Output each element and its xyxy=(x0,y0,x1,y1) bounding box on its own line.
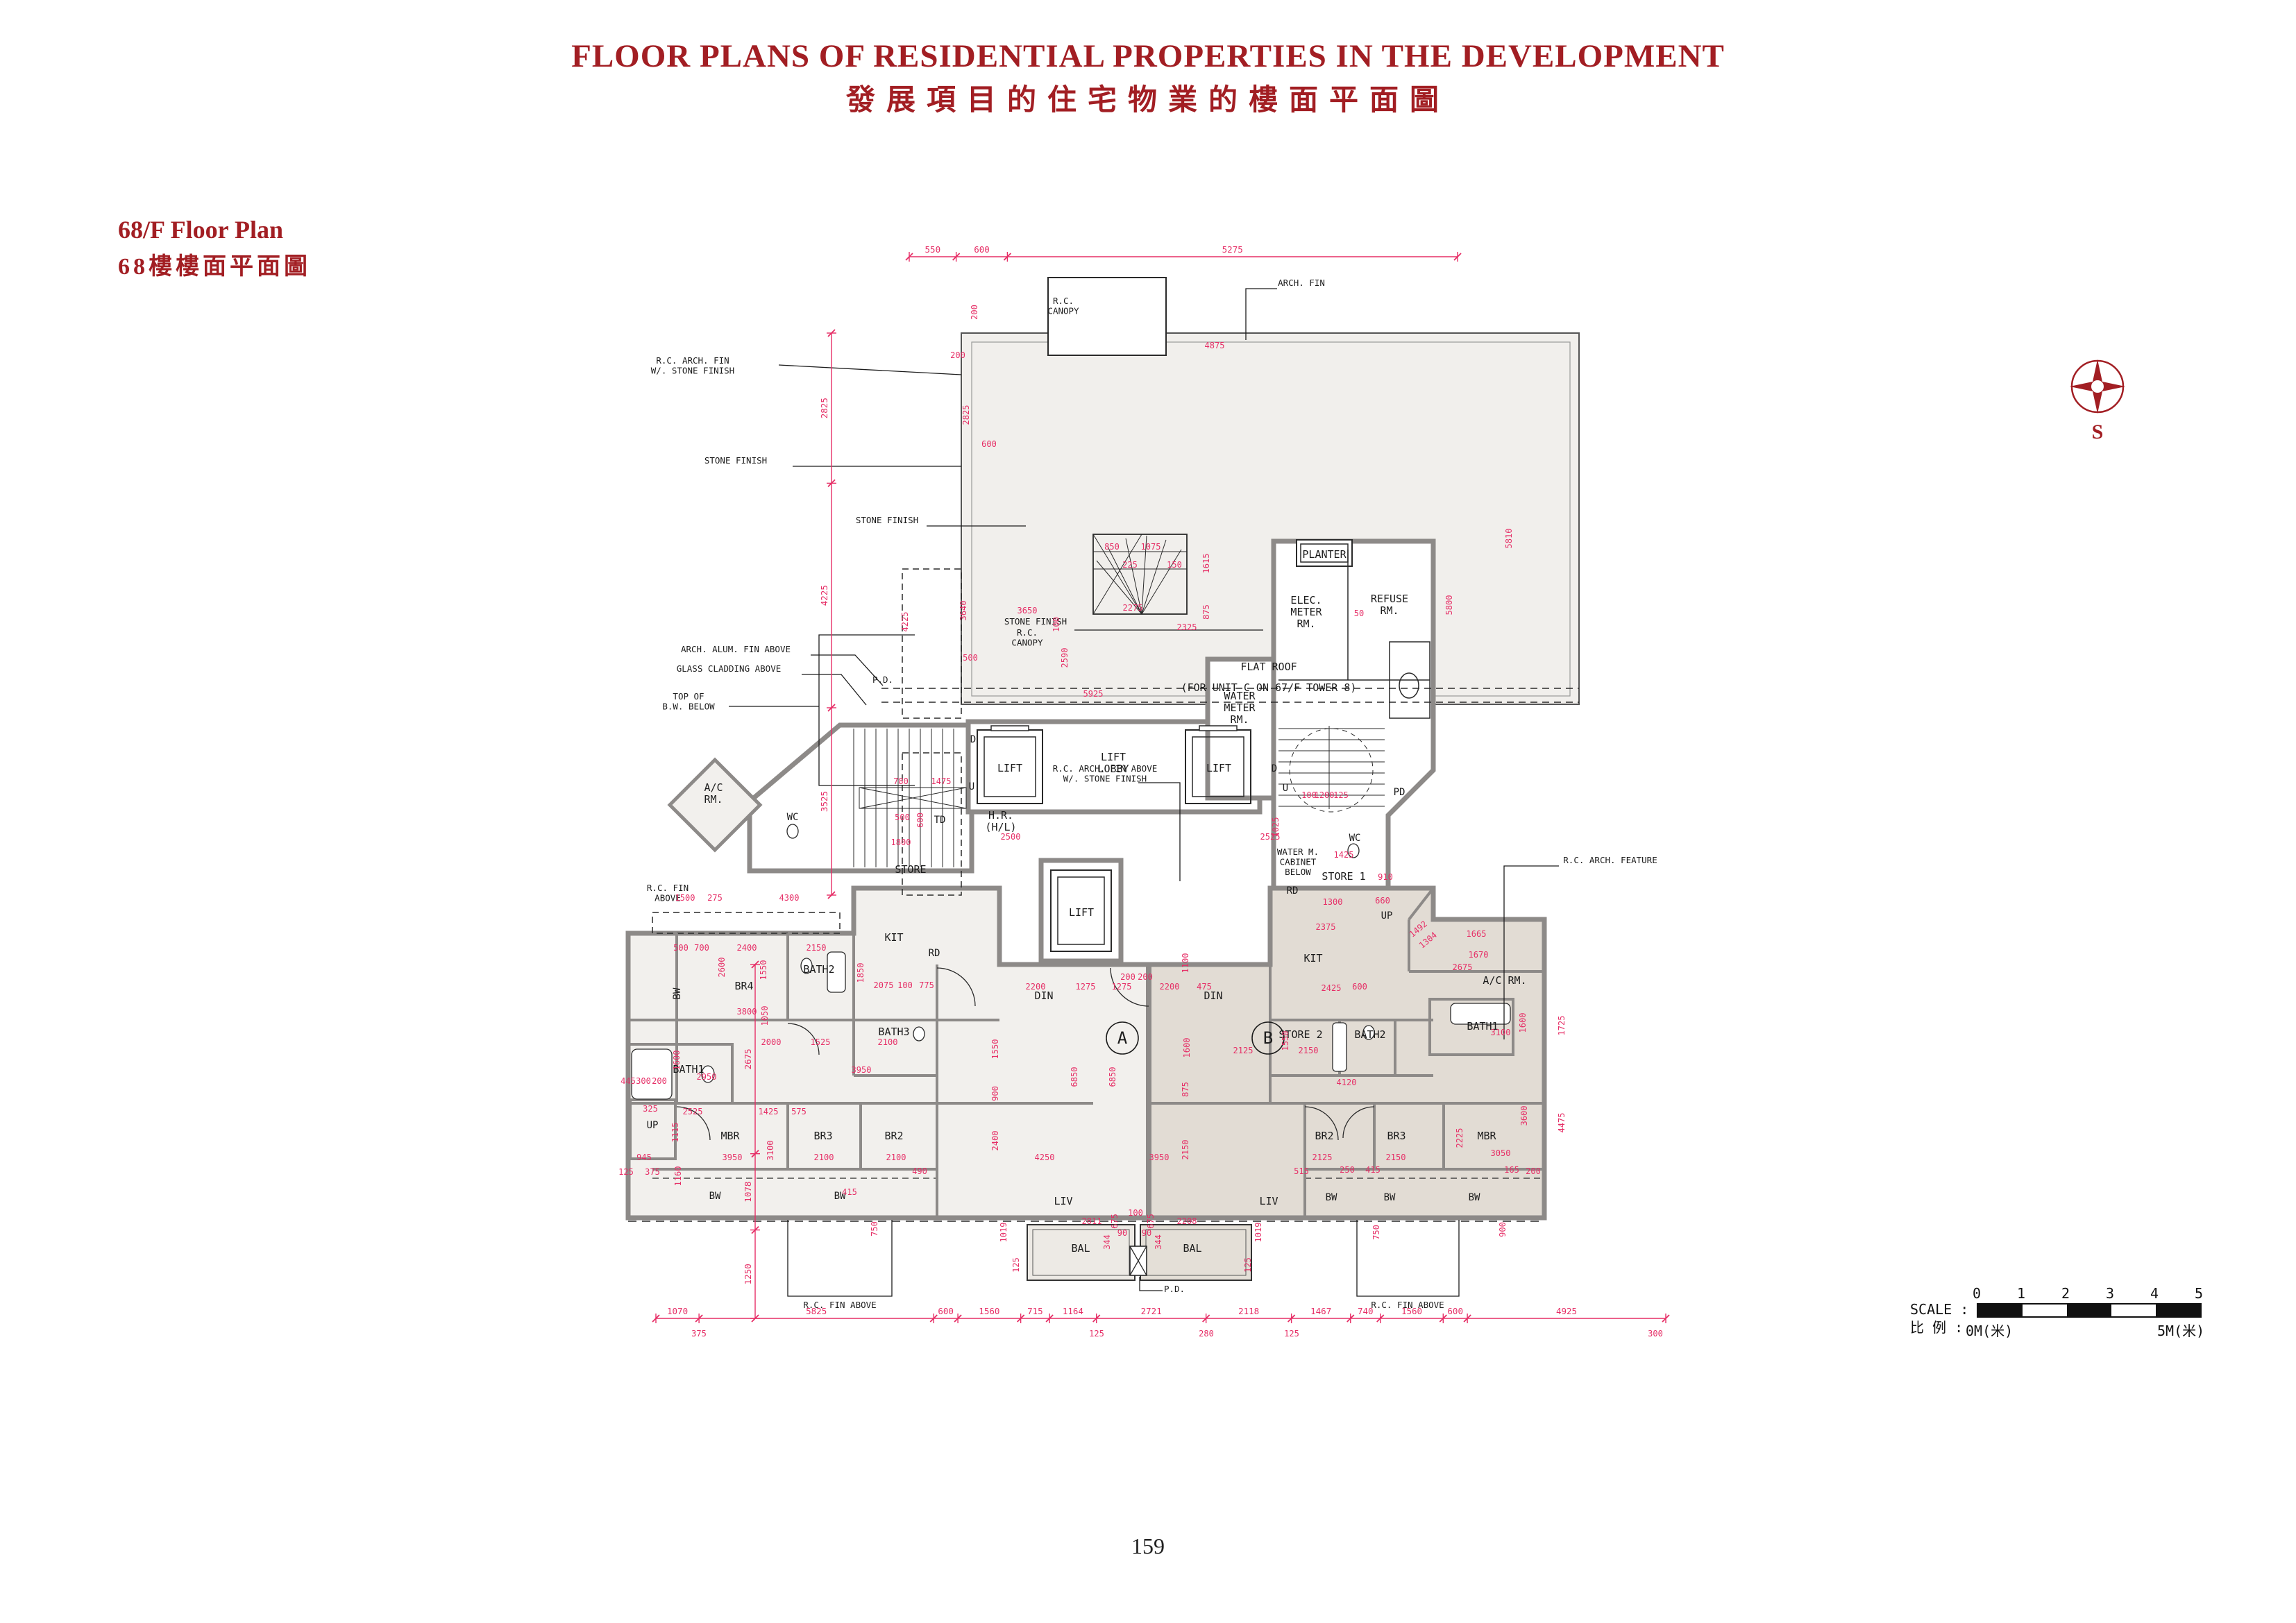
room-label: D xyxy=(970,734,976,745)
floor-plan-drawing: FLAT ROOF(FOR UNIT C ON 67/F TOWER 8)ELE… xyxy=(611,236,1707,1360)
scale-tick: 4 xyxy=(2150,1285,2159,1302)
dimension-text: 550 xyxy=(925,244,941,255)
dimension-text: 125 xyxy=(1284,1329,1299,1339)
dimension-text: 375 xyxy=(691,1329,707,1339)
dimension-text: 5810 xyxy=(1504,529,1514,549)
dimension-text: 280 xyxy=(1199,1329,1214,1339)
dimension-text: 5825 xyxy=(806,1306,827,1316)
scale-end-label: 5M(米) xyxy=(2157,1320,2204,1340)
dimension-text: 3100 xyxy=(1491,1028,1511,1037)
dimension-text: 344 xyxy=(1154,1234,1163,1250)
dimension-text: 675 xyxy=(1146,1214,1156,1229)
dimension-text: 1100 xyxy=(1181,953,1190,974)
room-label: H.R.(H/L) xyxy=(985,809,1016,833)
dimension-text: 200 xyxy=(970,305,979,320)
dimension-text: 1250 xyxy=(743,1264,753,1284)
page-title-chinese: 發展項目的住宅物業的樓面平面圖 xyxy=(0,76,2296,119)
dimension-text: 1078 xyxy=(743,1182,753,1203)
dimension-text: 1300 xyxy=(1323,897,1343,907)
dimension-text: 3640 xyxy=(959,601,968,621)
dimension-text: 660 xyxy=(1375,896,1390,906)
dimension-text: 6850 xyxy=(1108,1067,1117,1087)
dimension-text: 2375 xyxy=(1316,922,1336,932)
dimension-text: 50 xyxy=(1354,609,1364,618)
dimension-text: 1275 xyxy=(1112,982,1132,992)
callout-label: TOP OFB.W. BELOW xyxy=(662,691,715,712)
dimension-text: 600 xyxy=(938,1306,954,1316)
unit-label: A xyxy=(1117,1028,1128,1048)
callout-label: R.C. ARCH. FINW/. STONE FINISH xyxy=(651,355,734,376)
scale-tick: 3 xyxy=(2106,1285,2114,1302)
dimension-text: 490 xyxy=(912,1166,927,1176)
dimension-text: 2150 xyxy=(807,943,827,953)
room-label: BAL xyxy=(1071,1242,1090,1255)
room-label: MBR xyxy=(1477,1130,1496,1142)
room-label: WC xyxy=(1349,833,1361,844)
scale-bar: SCALE : 比 例 : 0 1 2 3 4 5 0M(米) 5M(米) xyxy=(1910,1285,2215,1361)
room-label: KIT xyxy=(1303,952,1322,965)
dimension-text: 1075 xyxy=(1141,542,1161,552)
dimension-text: 1425 xyxy=(759,1107,779,1116)
room-label: RD xyxy=(929,948,940,959)
room-label: MBR xyxy=(720,1130,740,1142)
dimension-text: 715 xyxy=(1027,1306,1043,1316)
dimension-text: 4250 xyxy=(1035,1153,1055,1162)
dimension-text: 4300 xyxy=(779,893,800,903)
dimension-text: 3800 xyxy=(737,1007,757,1017)
room-label: U xyxy=(969,781,974,792)
room-label: LIFT xyxy=(1206,762,1231,774)
dimension-text: 775 xyxy=(919,980,934,990)
dimension-text: 780 xyxy=(893,776,909,786)
dimension-text: 5925 xyxy=(1083,689,1104,699)
room-label: BW xyxy=(672,987,683,999)
dimension-text: 3525 xyxy=(819,791,829,812)
dimension-text: 900 xyxy=(990,1086,1000,1101)
callout-label: GLASS CLADDING ABOVE xyxy=(677,663,782,674)
dimension-text: 2150 xyxy=(1386,1153,1406,1162)
dimension-text: 150 xyxy=(1167,560,1182,570)
dimension-text: 415 xyxy=(1365,1165,1381,1175)
room-label: UP xyxy=(647,1120,659,1131)
room-label: BATH3 xyxy=(878,1026,909,1038)
dimension-text: 1600 xyxy=(1182,1038,1192,1058)
scale-tick: 2 xyxy=(2061,1285,2070,1302)
dimension-text: 850 xyxy=(1104,542,1120,552)
dimension-text: 3050 xyxy=(1491,1148,1511,1158)
dimension-text: 6850 xyxy=(1070,1067,1079,1087)
dimension-text: 1070 xyxy=(667,1306,688,1316)
dimension-text: 90 xyxy=(1117,1228,1127,1238)
dimension-text: 500 xyxy=(895,813,910,822)
dimension-text: 3950 xyxy=(1149,1153,1170,1162)
dimension-text: 500 xyxy=(673,943,689,953)
room-label: PD xyxy=(1394,787,1406,798)
dimension-text: 2100 xyxy=(814,1153,834,1162)
compass-north-indicator: S xyxy=(2063,355,2132,449)
dimension-text: 325 xyxy=(643,1104,658,1114)
room-label: STORE xyxy=(895,863,926,876)
dimension-text: 375 xyxy=(645,1167,660,1177)
dimension-text: 2125 xyxy=(1312,1153,1333,1162)
callout-label: P.D. xyxy=(872,674,893,685)
dimension-text: 2400 xyxy=(990,1131,1000,1151)
dimension-text: 3100 xyxy=(766,1141,775,1161)
dimension-text: 3950 xyxy=(723,1153,743,1162)
dimension-text: 1560 xyxy=(979,1306,999,1316)
dimension-text: 2208 xyxy=(1177,1216,1197,1226)
dimension-text: 2275 xyxy=(1123,603,1143,613)
dimension-text: 1425 xyxy=(1334,850,1354,860)
room-label: WC xyxy=(787,812,799,823)
scale-tick: 1 xyxy=(2017,1285,2025,1302)
room-label: BW xyxy=(709,1191,721,1202)
dimension-text: 4925 xyxy=(1556,1306,1577,1316)
dimension-text: 1550 xyxy=(1281,1031,1290,1051)
dimension-text: 1600 xyxy=(672,1051,682,1071)
dimension-text: 2100 xyxy=(886,1153,906,1162)
dimension-text: 2811 xyxy=(1082,1216,1102,1226)
dimension-text: 2950 xyxy=(697,1072,717,1082)
dimension-text: 200 xyxy=(1526,1166,1541,1176)
room-label: A/C RM. xyxy=(1483,974,1526,987)
dimension-text: 875 xyxy=(1201,604,1211,620)
dimension-text: 4225 xyxy=(819,585,829,606)
callout-label: R.C. ARCH. FIN ABOVEW/. STONE FINISH xyxy=(1053,763,1158,784)
room-label: D xyxy=(1272,763,1277,774)
dimension-text: 125 xyxy=(618,1167,634,1177)
scale-label-en: SCALE : xyxy=(1910,1300,1968,1318)
dimension-text: 2721 xyxy=(1141,1306,1162,1316)
floor-plan: FLAT ROOF(FOR UNIT C ON 67/F TOWER 8)ELE… xyxy=(611,236,1707,1360)
room-label: BAL xyxy=(1183,1242,1201,1255)
dimension-text: 1850 xyxy=(856,963,866,983)
dimension-text: 1550 xyxy=(990,1039,1000,1060)
dimension-text: 1525 xyxy=(811,1037,831,1047)
compass-south-label: S xyxy=(2092,420,2104,443)
callout-label: STONE FINISH xyxy=(856,515,918,525)
dimension-text: 675 xyxy=(1110,1214,1120,1229)
room-label: BATH2 xyxy=(1354,1028,1385,1041)
dimension-text: 3650 xyxy=(1018,606,1038,615)
dimension-text: 200 xyxy=(950,350,965,360)
dimension-text: 2590 xyxy=(1060,648,1070,668)
dimension-text: 1475 xyxy=(931,776,952,786)
dimension-text: 4120 xyxy=(1337,1078,1357,1087)
dimension-text: 1600 xyxy=(1518,1013,1528,1033)
dimension-text: 1800 xyxy=(891,838,911,847)
dimension-text: 1115 xyxy=(670,1123,680,1143)
dimension-text: 475 xyxy=(1197,982,1212,992)
dimension-text: 575 xyxy=(791,1107,807,1116)
dimension-text: 100 xyxy=(1052,617,1061,632)
dimension-text: 900 xyxy=(1498,1222,1508,1237)
dimension-text: 4225 xyxy=(900,612,910,632)
compass-icon: S xyxy=(2063,355,2132,449)
page: { "header": { "title_en": "FLOOR PLANS O… xyxy=(0,0,2296,1623)
dimension-text: 90 xyxy=(1142,1228,1151,1238)
dimension-text: 515 xyxy=(1294,1166,1309,1176)
dimension-text: 700 xyxy=(694,943,709,953)
dimension-text: 2675 xyxy=(743,1048,753,1069)
dimension-text: 2425 xyxy=(1322,983,1342,993)
room-label: BR2 xyxy=(1315,1130,1333,1142)
dimension-text: 2200 xyxy=(1026,982,1046,992)
scale-tick-labels: 0 1 2 3 4 5 xyxy=(1977,1285,2199,1299)
dimension-text: 4875 xyxy=(1205,341,1225,350)
dimension-text: 910 xyxy=(1378,872,1393,882)
dimension-text: 1025 xyxy=(1271,817,1281,838)
scale-bar-labels: SCALE : 比 例 : xyxy=(1910,1300,1968,1336)
dimension-text: 200 xyxy=(1120,972,1136,982)
room-label: RD xyxy=(1287,885,1299,897)
dimension-text: 1725 xyxy=(1557,1016,1567,1036)
dimension-text: 275 xyxy=(707,893,723,903)
dimension-text: 1670 xyxy=(1469,950,1489,960)
dimension-text: 2500 xyxy=(1001,832,1021,842)
dimension-text: 344 xyxy=(1102,1234,1112,1250)
dimension-text: 740 xyxy=(1358,1306,1374,1316)
dimension-text: 600 xyxy=(974,244,990,255)
room-label: UP xyxy=(1381,910,1393,921)
dimension-text: 2825 xyxy=(819,398,829,418)
dimension-text: 2675 xyxy=(1453,962,1473,972)
dimension-text: 100 xyxy=(1128,1208,1143,1218)
room-label: LIV xyxy=(1054,1195,1072,1207)
dimension-text: 200 xyxy=(1138,972,1153,982)
dimension-text: 2150 xyxy=(1181,1140,1190,1160)
room-label: LIFT xyxy=(1069,906,1094,919)
dimension-text: 2118 xyxy=(1238,1306,1259,1316)
dimension-text: 300 xyxy=(1648,1329,1663,1339)
room-label: LIV xyxy=(1259,1195,1278,1207)
floor-plan-title: 68/F Floor Plan xyxy=(118,215,283,244)
dimension-text: 2525 xyxy=(683,1107,703,1116)
room-label: (FOR UNIT C ON 67/F TOWER 8) xyxy=(1181,681,1357,694)
dimension-text: 1500 xyxy=(675,893,695,903)
room-label: PLANTER xyxy=(1302,548,1347,561)
dimension-text: 750 xyxy=(870,1221,879,1237)
callout-label: ARCH. FIN xyxy=(1278,278,1325,288)
room-label: BW xyxy=(1326,1192,1337,1203)
dimension-text: 2825 xyxy=(961,405,971,425)
dimension-text: 2150 xyxy=(1299,1046,1319,1055)
dimension-text: 1560 xyxy=(1401,1306,1422,1316)
dimension-text: 1275 xyxy=(1076,982,1096,992)
dimension-text: 3600 xyxy=(1519,1106,1529,1126)
room-label: STORE 1 xyxy=(1322,870,1365,883)
dimension-text: 445 xyxy=(621,1076,636,1086)
dimension-text: 2100 xyxy=(878,1037,898,1047)
callout-label: P.D. xyxy=(1164,1284,1185,1294)
scale-strip xyxy=(1977,1303,2202,1318)
dimension-text: 875 xyxy=(1181,1082,1190,1097)
scale-tick: 0 xyxy=(1973,1285,1981,1302)
room-label: BW xyxy=(1469,1192,1480,1203)
dimension-text: 250 xyxy=(1340,1165,1355,1175)
dimension-text: 3950 xyxy=(852,1065,872,1075)
room-label: KIT xyxy=(884,931,903,944)
dimension-text: 125 xyxy=(1243,1257,1253,1273)
room-label: BR4 xyxy=(734,980,753,992)
dimension-text: 200 xyxy=(652,1076,667,1086)
callout-label: ARCH. ALUM. FIN ABOVE xyxy=(681,644,791,654)
dimension-text: 5800 xyxy=(1444,595,1454,615)
dimension-text: 5275 xyxy=(1222,244,1243,255)
dimension-text: 2000 xyxy=(761,1037,782,1047)
dimension-text: 100 xyxy=(897,980,913,990)
dimension-text: 415 xyxy=(842,1187,857,1197)
room-label: LIFT xyxy=(997,762,1022,774)
dimension-text: 225 xyxy=(1122,560,1138,570)
dimension-text: 165 xyxy=(1504,1165,1519,1175)
room-label: BR3 xyxy=(813,1130,832,1142)
callout-label: R.C. ARCH. FEATURE xyxy=(1563,855,1657,865)
room-label: BW xyxy=(1384,1192,1396,1203)
dimension-text: 1019 xyxy=(999,1223,1008,1243)
dimension-text: 2200 xyxy=(1160,982,1180,992)
dimension-text: 1050 xyxy=(760,1006,770,1026)
dimension-text: 1665 xyxy=(1467,929,1487,939)
room-label: FLAT ROOF xyxy=(1240,661,1297,673)
dimension-text: 1160 xyxy=(673,1166,683,1187)
dimension-text: 600 xyxy=(981,439,997,449)
room-label: BATH2 xyxy=(803,963,834,976)
room-label: A/CRM. xyxy=(704,781,723,806)
dimension-text: 600 xyxy=(915,813,925,828)
callout-label: STONE FINISH xyxy=(704,455,767,466)
page-title: FLOOR PLANS OF RESIDENTIAL PROPERTIES IN… xyxy=(0,37,2296,75)
dimension-text: 500 xyxy=(963,653,978,663)
dimension-text: 2325 xyxy=(1177,622,1197,632)
dimension-text: 2125 xyxy=(1233,1046,1253,1055)
dimension-text: 125 xyxy=(1089,1329,1104,1339)
floor-plan-title-chinese: 68樓樓面平面圖 xyxy=(118,247,311,281)
scale-tick: 5 xyxy=(2195,1285,2203,1302)
dimension-text: 2075 xyxy=(874,980,894,990)
dimension-text: 125 xyxy=(1011,1257,1021,1273)
scale-start-label: 0M(米) xyxy=(1966,1320,2013,1340)
room-label: TD xyxy=(934,815,946,826)
dimension-text: 1550 xyxy=(759,960,768,980)
dimension-text: 600 xyxy=(1352,982,1367,992)
dimension-text: 125 xyxy=(1333,790,1349,800)
page-number: 159 xyxy=(0,1533,2296,1559)
room-label: BR3 xyxy=(1387,1130,1406,1142)
dimension-text: 945 xyxy=(636,1153,652,1162)
dimension-text: 1467 xyxy=(1310,1306,1331,1316)
dimension-text: 1615 xyxy=(1201,554,1211,574)
dimension-text: 750 xyxy=(1371,1225,1381,1240)
dimension-text: 2600 xyxy=(717,958,727,978)
dimension-text: 2225 xyxy=(1455,1128,1464,1148)
room-label: BR2 xyxy=(884,1130,903,1142)
scale-label-zh: 比 例 : xyxy=(1910,1318,1968,1336)
room-label: U xyxy=(1283,783,1288,794)
dimension-text: 1019 xyxy=(1253,1223,1263,1243)
dimension-text: 300 xyxy=(636,1076,651,1086)
dimension-text: 600 xyxy=(1447,1306,1463,1316)
dimension-text: 1200 xyxy=(1315,790,1335,800)
dimension-text: 4475 xyxy=(1557,1113,1567,1133)
dimension-text: 1164 xyxy=(1063,1306,1083,1316)
unit-label: B xyxy=(1263,1028,1273,1048)
dimension-text: 2400 xyxy=(737,943,757,953)
